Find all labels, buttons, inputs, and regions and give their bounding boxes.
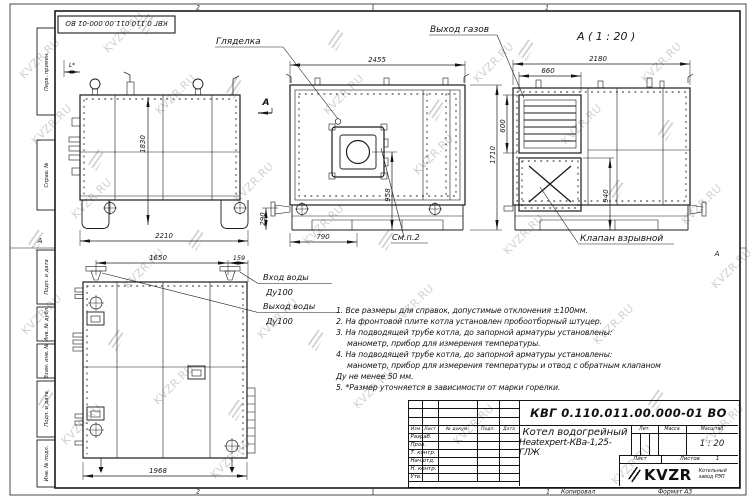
- col-list: Лист: [422, 425, 438, 433]
- dim-plan-w1: 1650: [149, 254, 167, 262]
- lit-header: Лит.: [631, 425, 658, 433]
- kvzr-logo-icon: [628, 465, 641, 484]
- product-model: Heatexpert-КВа-1,25-ГЛЖ: [519, 438, 631, 458]
- col-doc: № докум.: [438, 425, 477, 433]
- top-designation-stamp: КВГ 0.110.011.00.000-01 ВО: [65, 19, 168, 27]
- note-line: манометр, прибор для измерения температу…: [336, 360, 661, 371]
- margin-field: Подп. и дата: [44, 391, 50, 426]
- note-line: Ду не менее 50 мм.: [336, 371, 661, 382]
- margin-field: Справ. №: [44, 162, 50, 187]
- view-front-elevation: 2455 290 790 958 1710 Гляделка См.п.2: [215, 37, 502, 247]
- col-date: Дата: [499, 425, 519, 433]
- dim-plan-w3: 1968: [149, 467, 167, 475]
- view-plan: 1650 159 1968 Вход воды Ду100 Выход воды…: [73, 254, 340, 480]
- view-rear-section: 2180 660 600 940 Выход газов А ( 1 : 20 …: [429, 25, 706, 244]
- row-nachotd: Нач.отд.: [411, 457, 435, 465]
- note-line: 1. Все размеры для справок, допустимые о…: [336, 305, 661, 316]
- view-side-elevation: 1830 2210 L* А: [64, 60, 272, 246]
- designation: КВГ 0.110.011.00.000-01 ВО: [519, 402, 738, 424]
- drawing-sheet: KVZR.RU KVZR.RU KVZR.RU KVZR.RU KVZR.RU …: [0, 0, 750, 500]
- dim-front-stub: 290: [259, 212, 267, 226]
- row-prov: Пров.: [411, 441, 427, 449]
- water-outlet-dn: Ду100: [265, 316, 293, 326]
- product-name: Котел водогрейный: [523, 427, 628, 438]
- scale-value: 1 : 20: [686, 433, 738, 455]
- row-razrab: Разраб.: [411, 433, 432, 441]
- zone-number: 1: [545, 5, 549, 12]
- margin-field: Подп. и дата: [44, 259, 50, 294]
- sheet-label: Лист: [619, 455, 661, 463]
- note-line: 3. На подводящей трубе котла, до запорно…: [336, 327, 661, 338]
- see-note-label: См.п.2: [392, 232, 420, 242]
- water-inlet-label: Вход воды: [263, 272, 309, 282]
- margin-field: Инв. № дубл.: [44, 306, 50, 342]
- notes-block: 1. Все размеры для справок, допустимые о…: [336, 305, 661, 393]
- col-sign: Подп.: [477, 425, 499, 433]
- row-nkontr: Н. контр.: [411, 465, 437, 473]
- title-block: КВГ 0.110.011.00.000-01 ВО Изм Лист № до…: [408, 400, 740, 488]
- dim-side-offset: L*: [69, 62, 75, 69]
- margin-field: Взам. инв. №: [44, 343, 50, 378]
- format-label: Формат А3: [658, 489, 692, 496]
- dim-back-flue-w: 660: [541, 67, 555, 75]
- dim-plan-w2: 159: [233, 254, 245, 262]
- note-line: манометр, прибор для измерения температу…: [336, 338, 661, 349]
- dim-back-valve: 940: [602, 189, 610, 203]
- zone-letter: А: [714, 250, 720, 258]
- explosion-valve-label: Клапан взрывной: [580, 234, 663, 244]
- dim-total-height: 1710: [489, 146, 497, 164]
- mass-header: Масса: [658, 425, 686, 433]
- row-tkontr: Т. контр.: [411, 449, 436, 457]
- scale-header: Масштаб: [686, 425, 738, 433]
- zone-letter: А: [37, 237, 43, 245]
- zone-number: 2: [196, 489, 200, 496]
- dim-front-burner-x: 790: [316, 233, 330, 241]
- copied-label: Копировал: [561, 489, 595, 496]
- dim-front-burner-y: 958: [384, 188, 392, 202]
- col-izm: Изм: [409, 425, 422, 433]
- margin-field: Инв. № подл.: [44, 446, 50, 482]
- margin-field: Перв. примен.: [44, 52, 50, 91]
- dim-side-height: 1830: [139, 135, 147, 153]
- row-utv: Утв.: [411, 473, 422, 481]
- sight-glass-label: Гляделка: [216, 37, 261, 47]
- kvzr-logo-text: KVZR: [644, 466, 692, 484]
- note-line: 2. На фронтовой плите котла установлен п…: [336, 316, 661, 327]
- dim-front-width: 2455: [368, 56, 386, 64]
- note-line: 5. *Размер уточняется в зависимости от м…: [336, 382, 661, 393]
- logo-subtitle: завод РЭП: [699, 475, 727, 481]
- section-arrow-label: А: [262, 98, 270, 108]
- dim-back-width: 2180: [589, 55, 607, 63]
- sheets-value: 1: [716, 456, 719, 462]
- dim-back-flue-h: 600: [499, 119, 507, 133]
- note-line: 4. На подводящей трубе котла, до запорно…: [336, 349, 661, 360]
- dim-side-width: 2210: [155, 232, 173, 240]
- water-outlet-label: Выход воды: [263, 301, 316, 311]
- zone-number: 2: [196, 5, 200, 12]
- sheets-label: Листов: [680, 456, 700, 462]
- gas-outlet-label: Выход газов: [430, 25, 489, 35]
- zone-number: 1: [546, 489, 550, 496]
- section-view-label: А ( 1 : 20 ): [576, 30, 635, 43]
- sight-glass: [335, 119, 341, 125]
- water-inlet-dn: Ду100: [265, 287, 293, 297]
